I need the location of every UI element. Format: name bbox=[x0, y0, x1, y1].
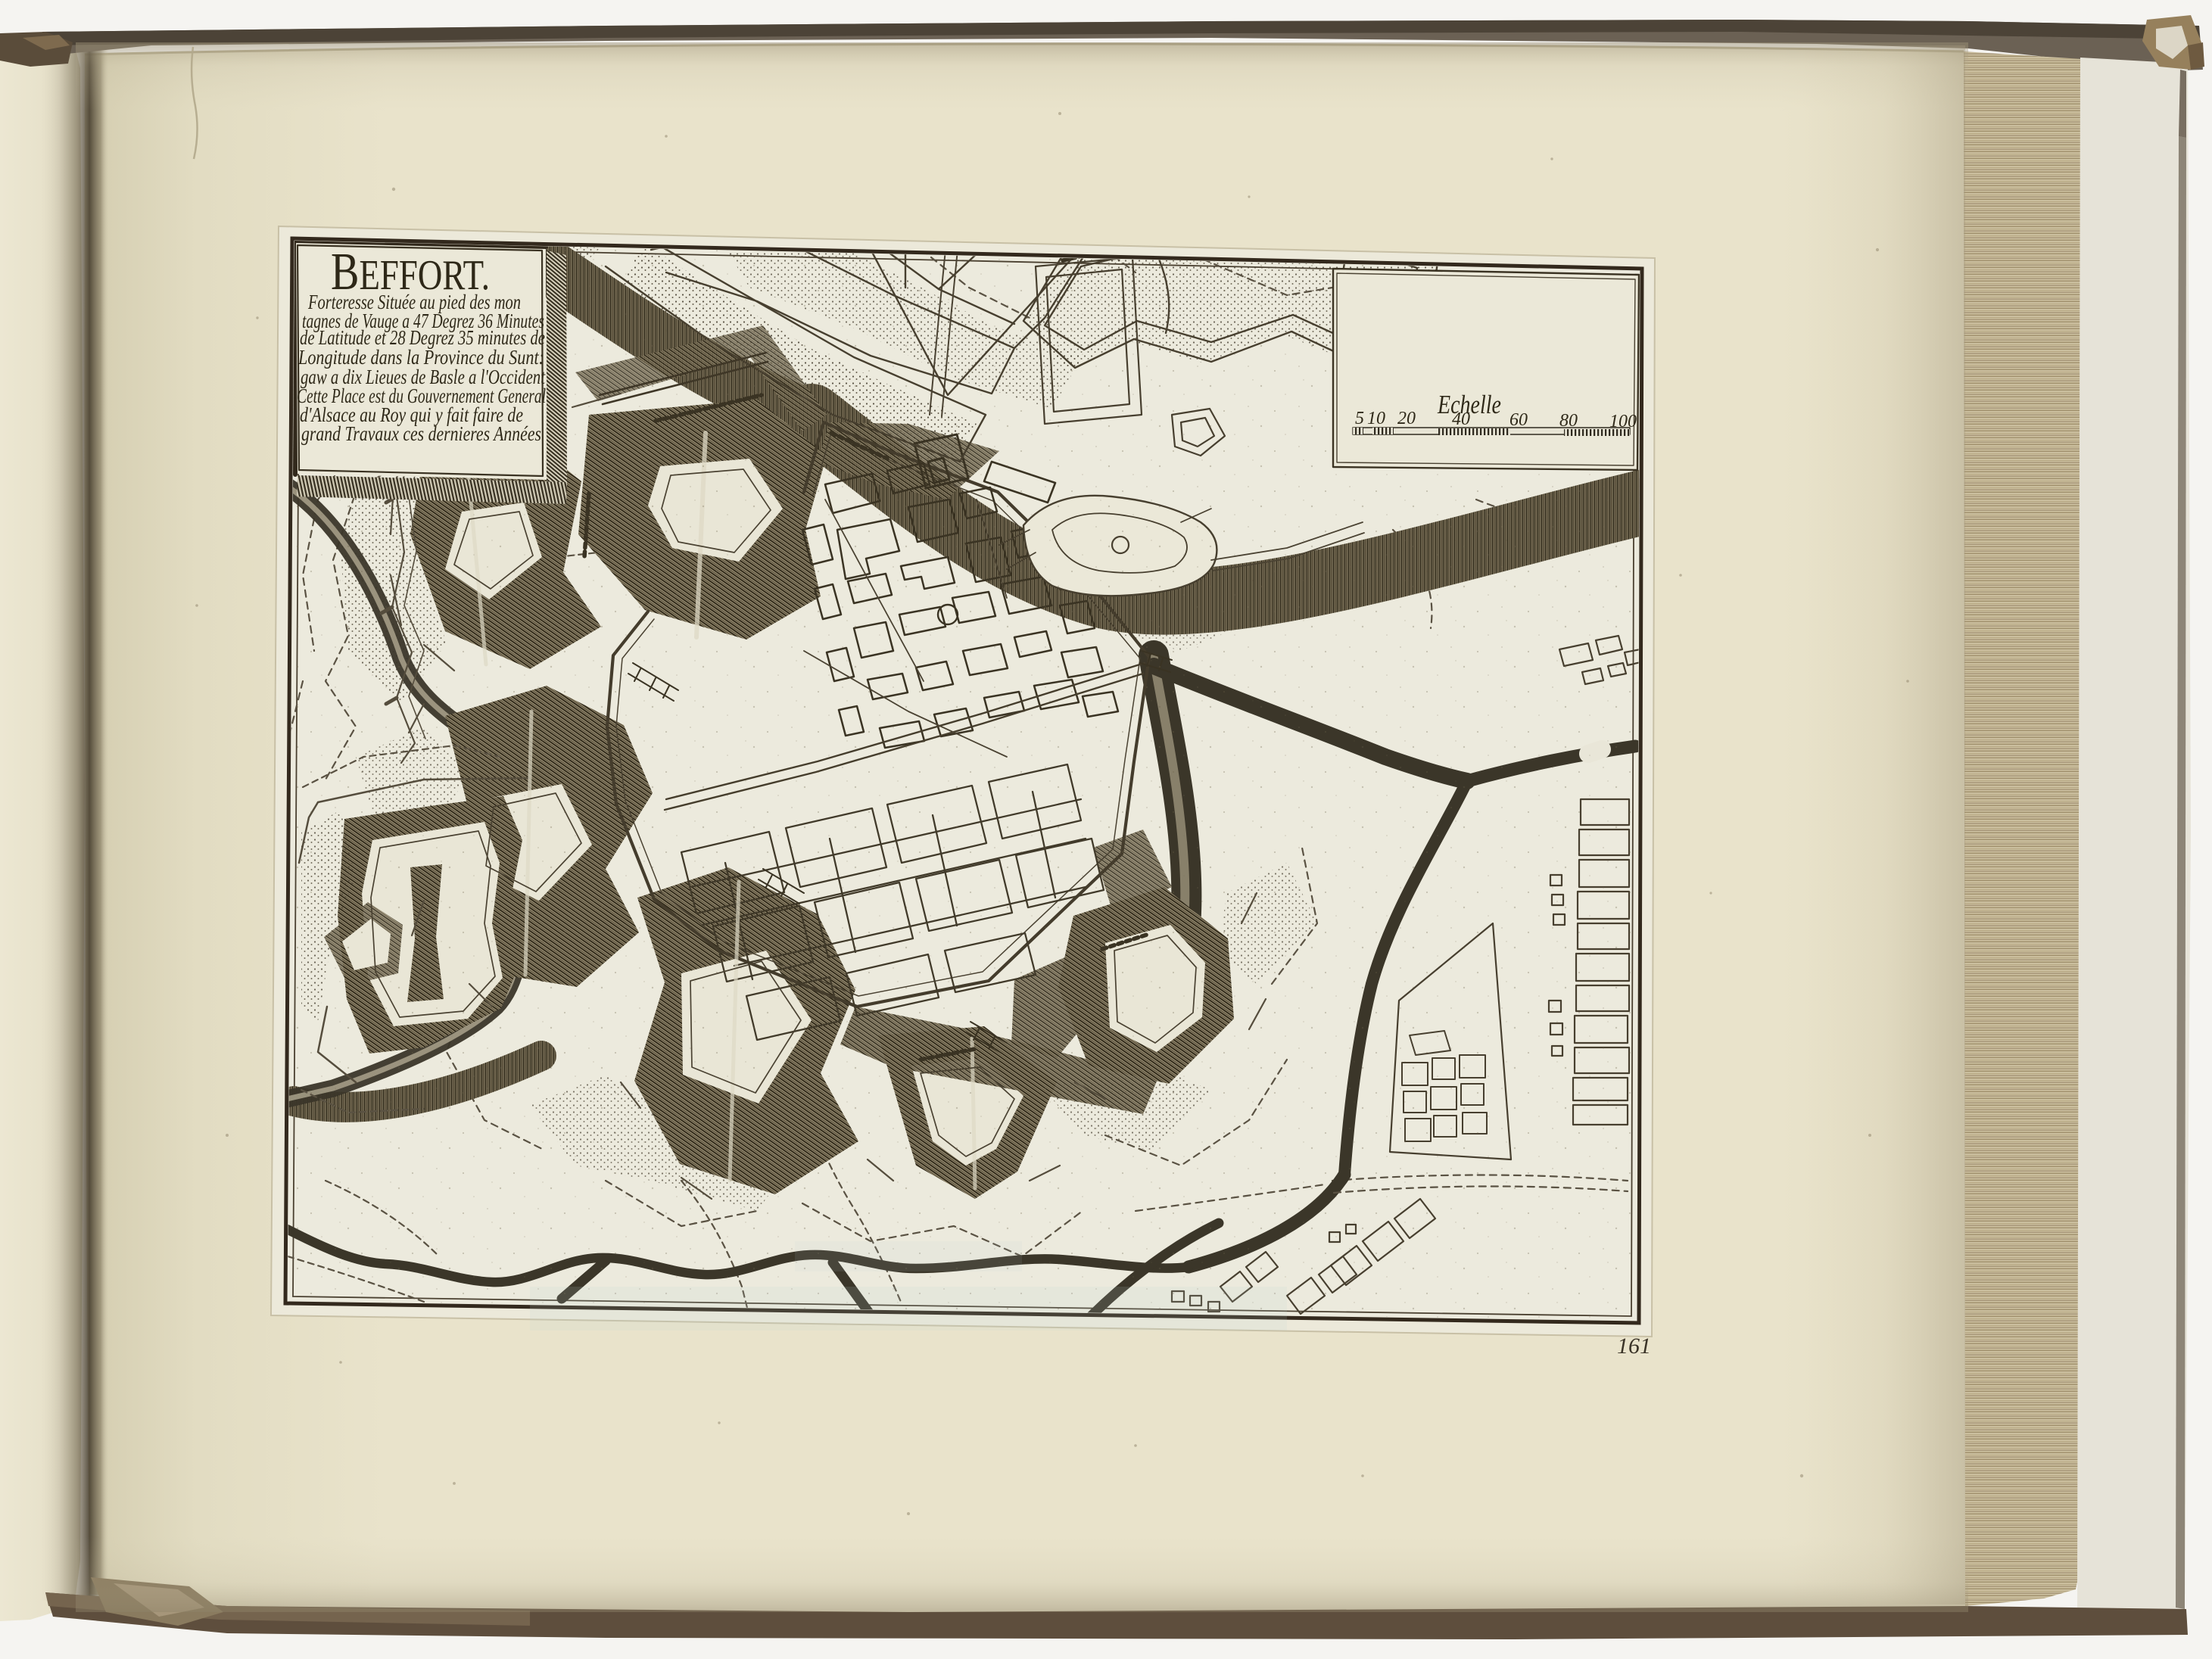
svg-text:161: 161 bbox=[1617, 1334, 1651, 1359]
svg-text:10: 10 bbox=[1367, 409, 1385, 428]
svg-text:60: 60 bbox=[1509, 410, 1528, 430]
svg-text:5: 5 bbox=[1355, 409, 1364, 428]
svg-text:40: 40 bbox=[1452, 409, 1470, 429]
svg-text:grand Travaux ces dernieres An: grand Travaux ces dernieres Années bbox=[301, 422, 541, 445]
svg-text:20: 20 bbox=[1397, 409, 1416, 428]
